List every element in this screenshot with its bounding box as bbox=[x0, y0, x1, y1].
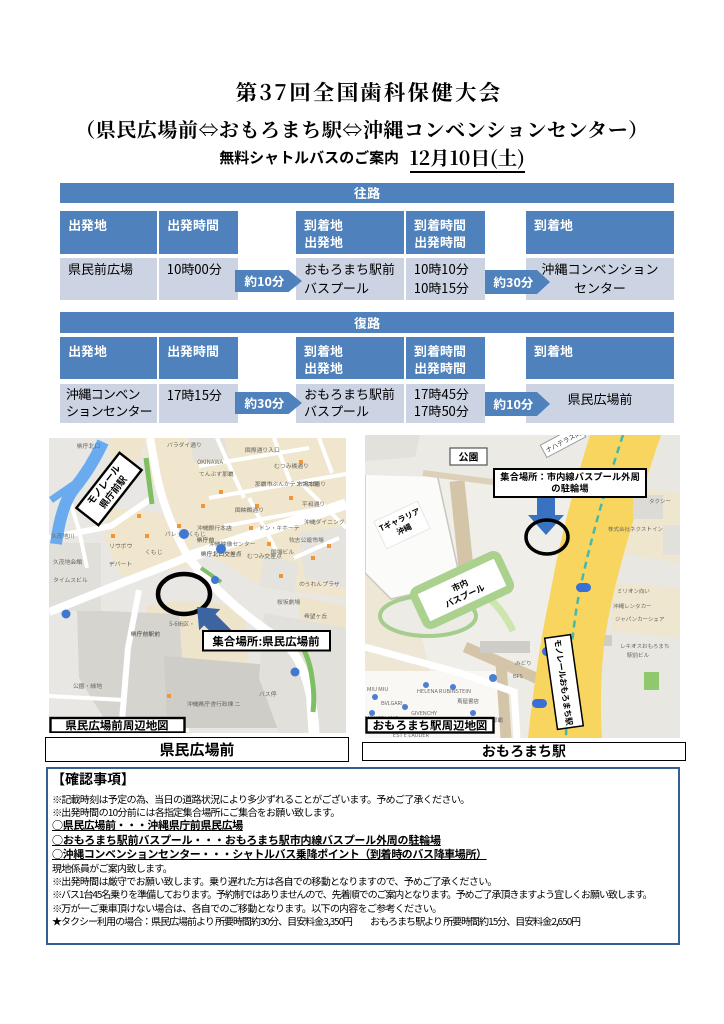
svg-text:タクシー: タクシー bbox=[649, 497, 671, 505]
svg-text:パラダイ通り: パラダイ通り bbox=[167, 440, 202, 449]
svg-text:くもじ: くもじ bbox=[145, 547, 163, 556]
svg-text:県庁前駅前: 県庁前駅前 bbox=[130, 629, 160, 638]
svg-text:レキオスおもろまち: レキオスおもろまち bbox=[620, 642, 670, 650]
svg-text:タイムスビル: タイムスビル bbox=[53, 575, 88, 584]
svg-text:県民広場前周辺地図: 県民広場前周辺地図 bbox=[65, 718, 169, 734]
svg-text:那覇市ぶんかテンブス館: 那覇市ぶんかテンブス館 bbox=[255, 479, 319, 488]
svg-text:むつみ橋通り: むつみ橋通り bbox=[274, 461, 309, 470]
svg-text:株式会社ネクストイン: 株式会社ネクストイン bbox=[608, 525, 663, 533]
svg-text:公園・緑地: 公園・緑地 bbox=[73, 681, 103, 690]
svg-text:県庁北口: 県庁北口 bbox=[76, 441, 100, 450]
svg-text:BVLGARI: BVLGARI bbox=[381, 699, 403, 707]
svg-text:みどり: みどり bbox=[515, 659, 532, 667]
svg-text:のうれんプラザ: のうれんプラザ bbox=[299, 579, 340, 588]
svg-text:集合場所:県民広場前: 集合場所:県民広場前 bbox=[211, 634, 319, 650]
svg-text:久茂地会館: 久茂地会館 bbox=[53, 557, 82, 566]
svg-text:MIU MIU: MIU MIU bbox=[367, 685, 388, 693]
svg-text:リウボウ: リウボウ bbox=[109, 541, 132, 550]
svg-text:BFS: BFS bbox=[513, 672, 524, 680]
svg-text:ジャパンカーシェア: ジャパンカーシェア bbox=[615, 615, 665, 623]
svg-text:国映館通り: 国映館通り bbox=[235, 505, 264, 514]
svg-text:ドン・キホーテ: ドン・キホーテ bbox=[259, 523, 300, 532]
svg-text:平和通り: 平和通り bbox=[302, 499, 325, 508]
svg-text:久茂地川: 久茂地川 bbox=[51, 531, 74, 540]
svg-text:牧志公設市場: 牧志公設市場 bbox=[289, 535, 324, 544]
svg-text:沖縄映像センター: 沖縄映像センター bbox=[209, 539, 255, 548]
svg-text:の駐輪場: の駐輪場 bbox=[551, 481, 588, 495]
svg-text:沖縄ダイニング: 沖縄ダイニング bbox=[304, 517, 345, 526]
svg-text:おもろまち駅周辺地図: おもろまち駅周辺地図 bbox=[373, 718, 488, 734]
svg-text:希望ヶ丘: 希望ヶ丘 bbox=[303, 611, 327, 620]
svg-text:公園: 公園 bbox=[459, 449, 479, 464]
svg-text:県庁前: 県庁前 bbox=[196, 535, 215, 544]
svg-text:5-6街区・: 5-6街区・ bbox=[168, 619, 195, 628]
svg-text:駅前ビル: 駅前ビル bbox=[627, 651, 650, 659]
svg-text:デパート: デパート bbox=[109, 559, 132, 568]
svg-text:沖縄レンタカー: 沖縄レンタカー bbox=[613, 602, 652, 610]
svg-text:GIVENCHY: GIVENCHY bbox=[411, 709, 437, 717]
svg-text:OKINAWA: OKINAWA bbox=[197, 457, 224, 466]
svg-text:HELENA RUBINSTEIN: HELENA RUBINSTEIN bbox=[417, 687, 471, 695]
svg-text:国場ビル: 国場ビル bbox=[271, 547, 294, 556]
svg-text:国際通り入口: 国際通り入口 bbox=[245, 445, 280, 454]
svg-text:ミリオン向い: ミリオン向い bbox=[617, 587, 650, 595]
svg-text:沖縄県庁舎行政棟 ニ: 沖縄県庁舎行政棟 ニ bbox=[187, 699, 240, 708]
svg-text:蔦屋書店: 蔦屋書店 bbox=[457, 697, 480, 705]
svg-text:バス停: バス停 bbox=[259, 689, 277, 698]
svg-text:てんぶす那覇: てんぶす那覇 bbox=[199, 469, 234, 478]
svg-text:桜坂劇場: 桜坂劇場 bbox=[277, 597, 300, 606]
svg-text:沖縄銀行本店: 沖縄銀行本店 bbox=[197, 523, 232, 532]
